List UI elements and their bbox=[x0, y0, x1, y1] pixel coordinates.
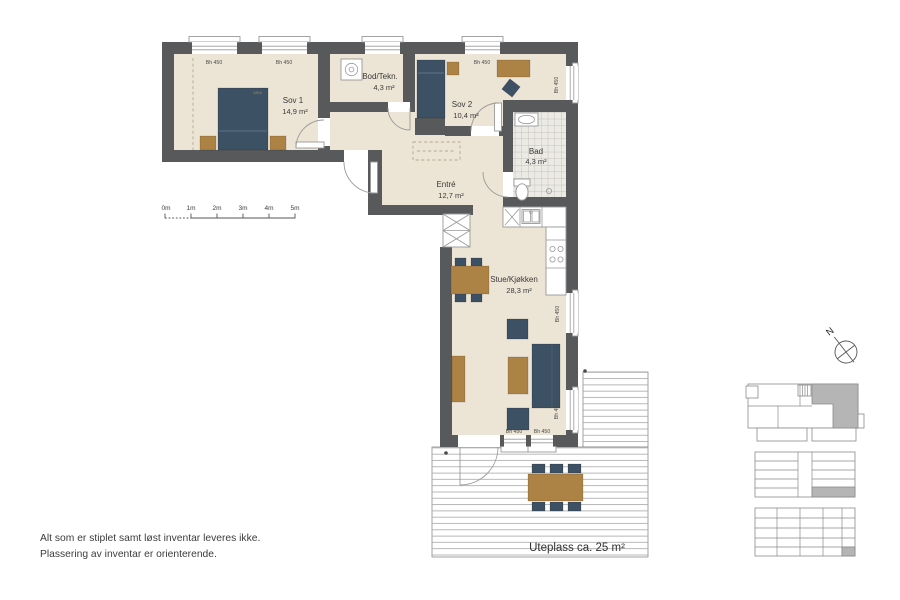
room-area-entre: 12,7 m² bbox=[438, 191, 464, 200]
bed-dimension-label: 1800 bbox=[253, 90, 263, 95]
door-leaf bbox=[371, 162, 378, 193]
room-label-bad: Bad bbox=[529, 147, 543, 156]
bh-label: Bh 450 bbox=[506, 429, 523, 435]
room-label-sov2: Sov 2 bbox=[452, 100, 473, 109]
compass-icon: N bbox=[818, 321, 862, 369]
window-opening bbox=[566, 390, 578, 430]
window bbox=[259, 37, 310, 55]
room-label-bod: Bod/Tekn. bbox=[362, 72, 398, 81]
room-area-sov1: 14,9 m² bbox=[282, 107, 308, 116]
floor-plan-sheet: 1800 bbox=[0, 0, 900, 600]
armchair bbox=[507, 319, 528, 339]
window-sill bbox=[501, 447, 529, 453]
window bbox=[362, 37, 403, 55]
bh-label: Bh 450 bbox=[554, 77, 560, 94]
key-plan-elevation-b bbox=[755, 508, 855, 556]
bh-label: Bh 450 bbox=[276, 60, 293, 66]
wall-bad-top bbox=[503, 100, 566, 112]
window-opening bbox=[566, 66, 578, 100]
wall-bottom-left-wing bbox=[162, 150, 368, 162]
terrace-label: Uteplass ca. 25 m² bbox=[529, 542, 625, 554]
door-leaf bbox=[495, 103, 502, 131]
outdoor-table bbox=[528, 474, 583, 501]
window bbox=[462, 37, 503, 55]
coffee-table bbox=[508, 357, 528, 394]
window-sill bbox=[259, 37, 310, 43]
window bbox=[528, 435, 556, 452]
room-label-stue: Stue/Kjøkken bbox=[490, 275, 538, 284]
window-sill bbox=[362, 37, 403, 43]
wall-kitchen-top bbox=[503, 197, 566, 207]
furniture-terrace bbox=[528, 464, 583, 511]
bed-sov1 bbox=[218, 88, 268, 150]
disclaimer-line-1: Alt som er stiplet samt løst inventar le… bbox=[40, 533, 260, 544]
bh-label: Bh 450 bbox=[555, 306, 561, 323]
bed-sov2 bbox=[417, 60, 445, 118]
nightstand bbox=[447, 62, 459, 75]
window-opening bbox=[365, 42, 400, 54]
tv-bench bbox=[452, 356, 465, 402]
room-area-sov2: 10,4 m² bbox=[453, 111, 479, 120]
deck-side-boards bbox=[583, 372, 648, 447]
outdoor-chair bbox=[532, 502, 545, 511]
bh-label: Bh 450 bbox=[534, 429, 551, 435]
window bbox=[189, 37, 240, 55]
window-opening bbox=[465, 42, 500, 54]
window-opening bbox=[504, 435, 526, 447]
door-leaf bbox=[296, 142, 324, 148]
scale-tick-0m: 0m bbox=[161, 205, 170, 212]
wall-left bbox=[162, 54, 174, 150]
window-sill bbox=[528, 447, 556, 453]
wall-living-left bbox=[440, 247, 452, 447]
window bbox=[566, 63, 578, 103]
window-opening bbox=[566, 293, 578, 333]
scale-tick-2m: 2m bbox=[212, 205, 221, 212]
room-area-bod: 4,3 m² bbox=[373, 83, 395, 92]
window bbox=[501, 435, 529, 452]
armchair bbox=[507, 408, 529, 430]
deck-post bbox=[583, 369, 587, 373]
window-opening bbox=[192, 42, 237, 54]
desk bbox=[497, 60, 530, 77]
wall-sov2-below-bed bbox=[415, 118, 445, 135]
window-sill bbox=[462, 37, 503, 43]
floor-plan-drawing: 1800 bbox=[0, 0, 900, 600]
scale-tick-5m: 5m bbox=[290, 205, 299, 212]
deck-post bbox=[444, 451, 448, 455]
scale-tick-3m: 3m bbox=[238, 205, 247, 212]
dining-table bbox=[451, 266, 489, 294]
outdoor-chair bbox=[550, 464, 563, 473]
key-plan-unit-highlight bbox=[812, 487, 855, 497]
compass-north-label: N bbox=[824, 325, 836, 338]
room-area-stue: 28,3 m² bbox=[506, 286, 532, 295]
disclaimer: Alt som er stiplet samt løst inventar le… bbox=[40, 533, 260, 560]
nightstand bbox=[270, 136, 286, 150]
nightstand bbox=[200, 136, 216, 150]
window-sill bbox=[189, 37, 240, 43]
window-opening bbox=[531, 435, 553, 447]
furniture-bod bbox=[341, 59, 362, 80]
room-label-sov1: Sov 1 bbox=[283, 96, 304, 105]
window-opening bbox=[262, 42, 307, 54]
room-label-entre: Entré bbox=[436, 180, 456, 189]
bh-label: Bh 450 bbox=[474, 60, 491, 66]
scale-tick-4m: 4m bbox=[264, 205, 273, 212]
key-plan-site bbox=[746, 384, 864, 441]
window bbox=[566, 290, 578, 336]
key-plan-unit-highlight bbox=[842, 547, 855, 556]
window bbox=[566, 387, 578, 433]
kitchen-sink bbox=[522, 210, 540, 224]
outdoor-chair bbox=[568, 464, 581, 473]
scale-bar: 0m 1m 2m 3m 4m 5m bbox=[161, 205, 299, 219]
bh-label: Bh 450 bbox=[206, 60, 223, 66]
outdoor-chair bbox=[550, 502, 563, 511]
scale-tick-1m: 1m bbox=[186, 205, 195, 212]
outdoor-chair bbox=[568, 502, 581, 511]
sofa bbox=[532, 344, 560, 408]
ventilation-unit bbox=[341, 59, 362, 80]
disclaimer-line-2: Plassering av inventar er orienterende. bbox=[40, 549, 217, 560]
wardrobe bbox=[443, 214, 470, 247]
wall-entre-living bbox=[368, 205, 473, 215]
wall-bod-sov2 bbox=[403, 54, 415, 102]
bh-label: Bh 450 bbox=[554, 403, 560, 420]
key-plan-elevation-a bbox=[755, 452, 855, 497]
room-area-bad: 4,3 m² bbox=[525, 157, 547, 166]
outdoor-chair bbox=[532, 464, 545, 473]
